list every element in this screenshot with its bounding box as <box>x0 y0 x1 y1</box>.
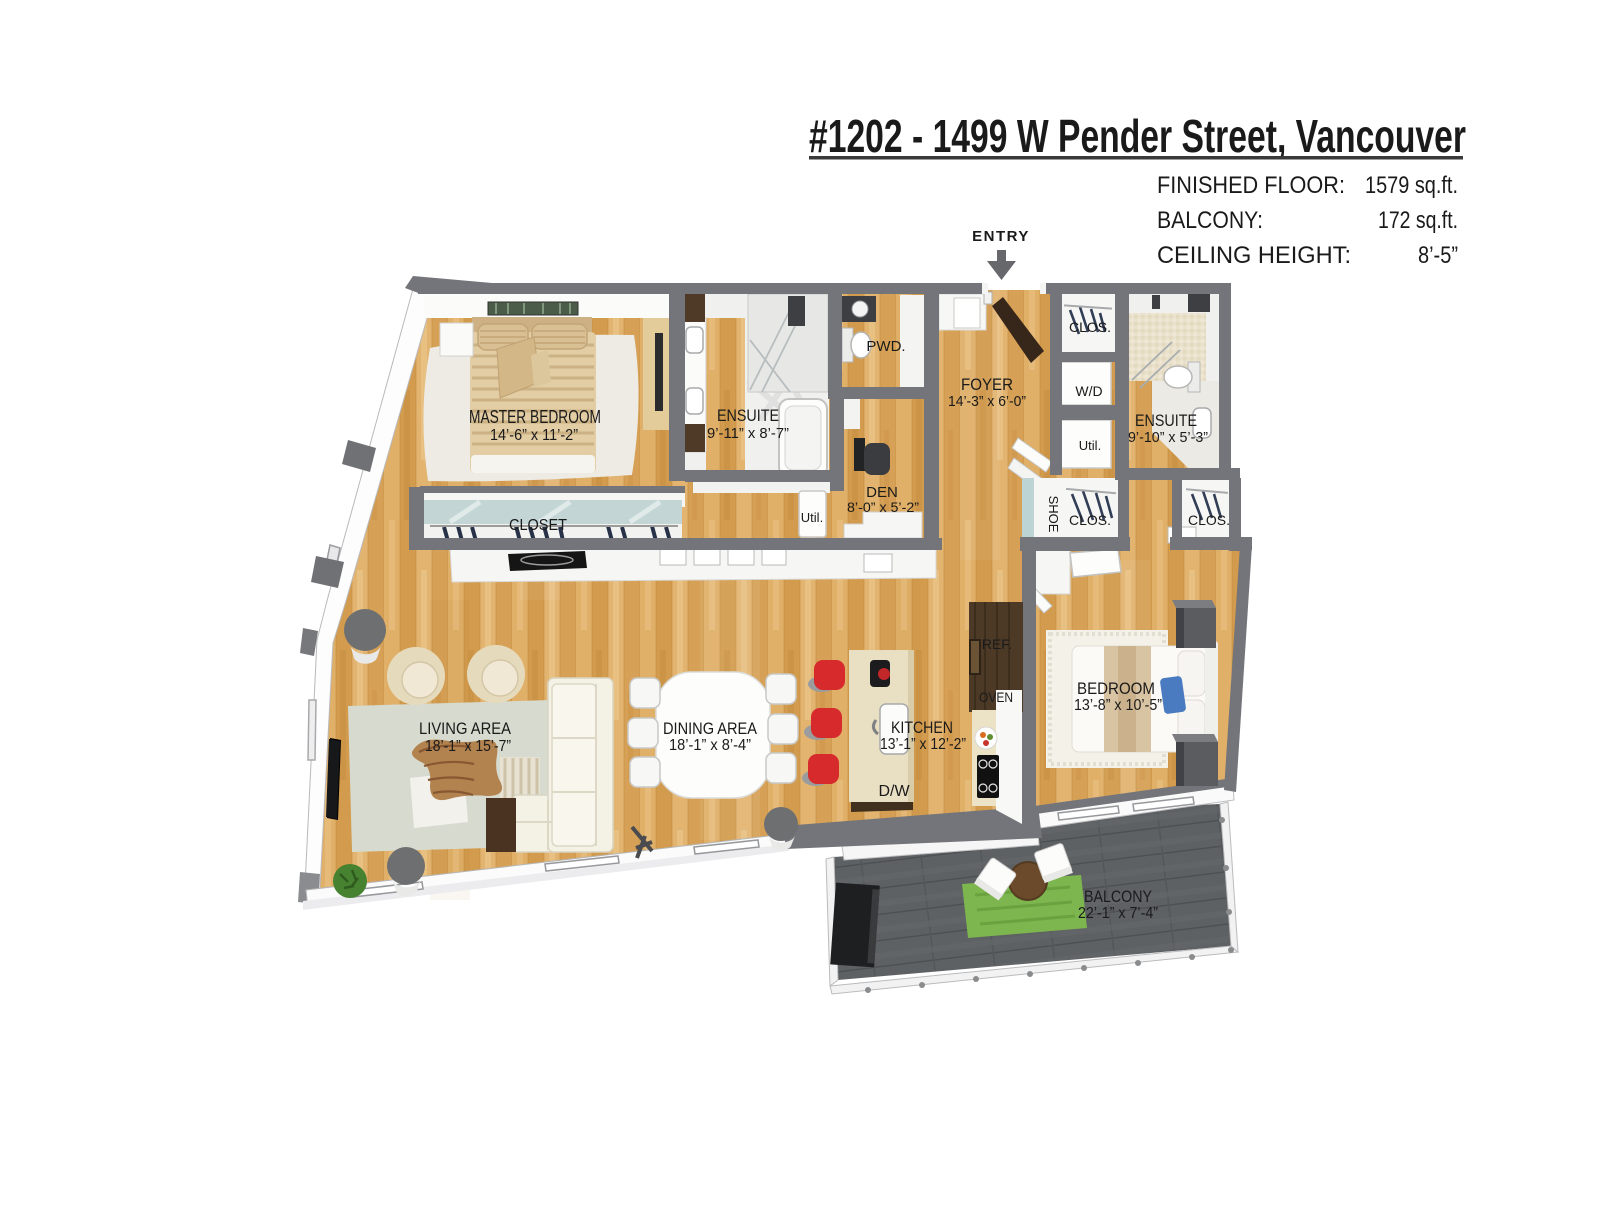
svg-text:CLOSET: CLOSET <box>509 517 567 534</box>
svg-text:PWD.: PWD. <box>866 338 905 355</box>
svg-text:LIVING AREA: LIVING AREA <box>419 719 512 738</box>
svg-text:KITCHEN: KITCHEN <box>891 718 953 737</box>
svg-text:Util.: Util. <box>1079 438 1101 453</box>
svg-text:CLOS.: CLOS. <box>1069 512 1111 528</box>
svg-text:9’-10” x 5’-3”: 9’-10” x 5’-3” <box>1128 429 1208 446</box>
svg-text:13’-8” x 10’-5”: 13’-8” x 10’-5” <box>1074 697 1162 714</box>
svg-text:BEDROOM: BEDROOM <box>1077 679 1155 698</box>
svg-text:OVEN: OVEN <box>979 689 1013 705</box>
svg-text:14’-6” x 11’-2”: 14’-6” x 11’-2” <box>490 427 578 444</box>
svg-text:8’-0” x 5’-2”: 8’-0” x 5’-2” <box>847 499 919 515</box>
svg-text:REF.: REF. <box>982 636 1012 652</box>
svg-text:8’-5”: 8’-5” <box>1418 242 1458 269</box>
svg-text:BALCONY:: BALCONY: <box>1157 207 1263 234</box>
svg-text:FINISHED FLOOR:: FINISHED FLOOR: <box>1157 172 1345 199</box>
svg-text:D/W: D/W <box>878 783 910 800</box>
svg-text:SHOE: SHOE <box>1046 496 1061 533</box>
svg-text:18’-1” x 8’-4”: 18’-1” x 8’-4” <box>669 737 751 754</box>
svg-text:13’-1” x 12’-2”: 13’-1” x 12’-2” <box>880 736 966 753</box>
svg-text:DINING AREA: DINING AREA <box>663 719 758 738</box>
svg-text:22’-1” x 7’-4”: 22’-1” x 7’-4” <box>1078 905 1158 922</box>
svg-text:ENSUITE: ENSUITE <box>717 406 779 425</box>
svg-text:Util.: Util. <box>801 510 823 525</box>
svg-text:FOYER: FOYER <box>961 375 1013 394</box>
svg-text:CLOS.: CLOS. <box>1188 512 1230 528</box>
svg-text:CLOS.: CLOS. <box>1069 319 1111 335</box>
svg-text:BALCONY: BALCONY <box>1084 887 1152 906</box>
svg-text:18’-1” x 15’-7”: 18’-1” x 15’-7” <box>425 738 511 755</box>
svg-text:ENTRY: ENTRY <box>972 228 1030 245</box>
svg-text:14’-3” x 6’-0”: 14’-3” x 6’-0” <box>948 393 1026 410</box>
svg-text:9’-11” x 8’-7”: 9’-11” x 8’-7” <box>707 425 789 442</box>
svg-text:MASTER BEDROOM: MASTER BEDROOM <box>469 407 601 427</box>
svg-text:172 sq.ft.: 172 sq.ft. <box>1378 207 1458 234</box>
svg-text:W/D: W/D <box>1075 383 1102 399</box>
svg-text:CEILING HEIGHT:: CEILING HEIGHT: <box>1157 242 1351 269</box>
svg-text:1579 sq.ft.: 1579 sq.ft. <box>1365 172 1458 199</box>
svg-text:ENSUITE: ENSUITE <box>1135 411 1197 430</box>
svg-text:#1202 - 1499 W Pender Street,: #1202 - 1499 W Pender Street, Vancouver <box>809 110 1466 162</box>
